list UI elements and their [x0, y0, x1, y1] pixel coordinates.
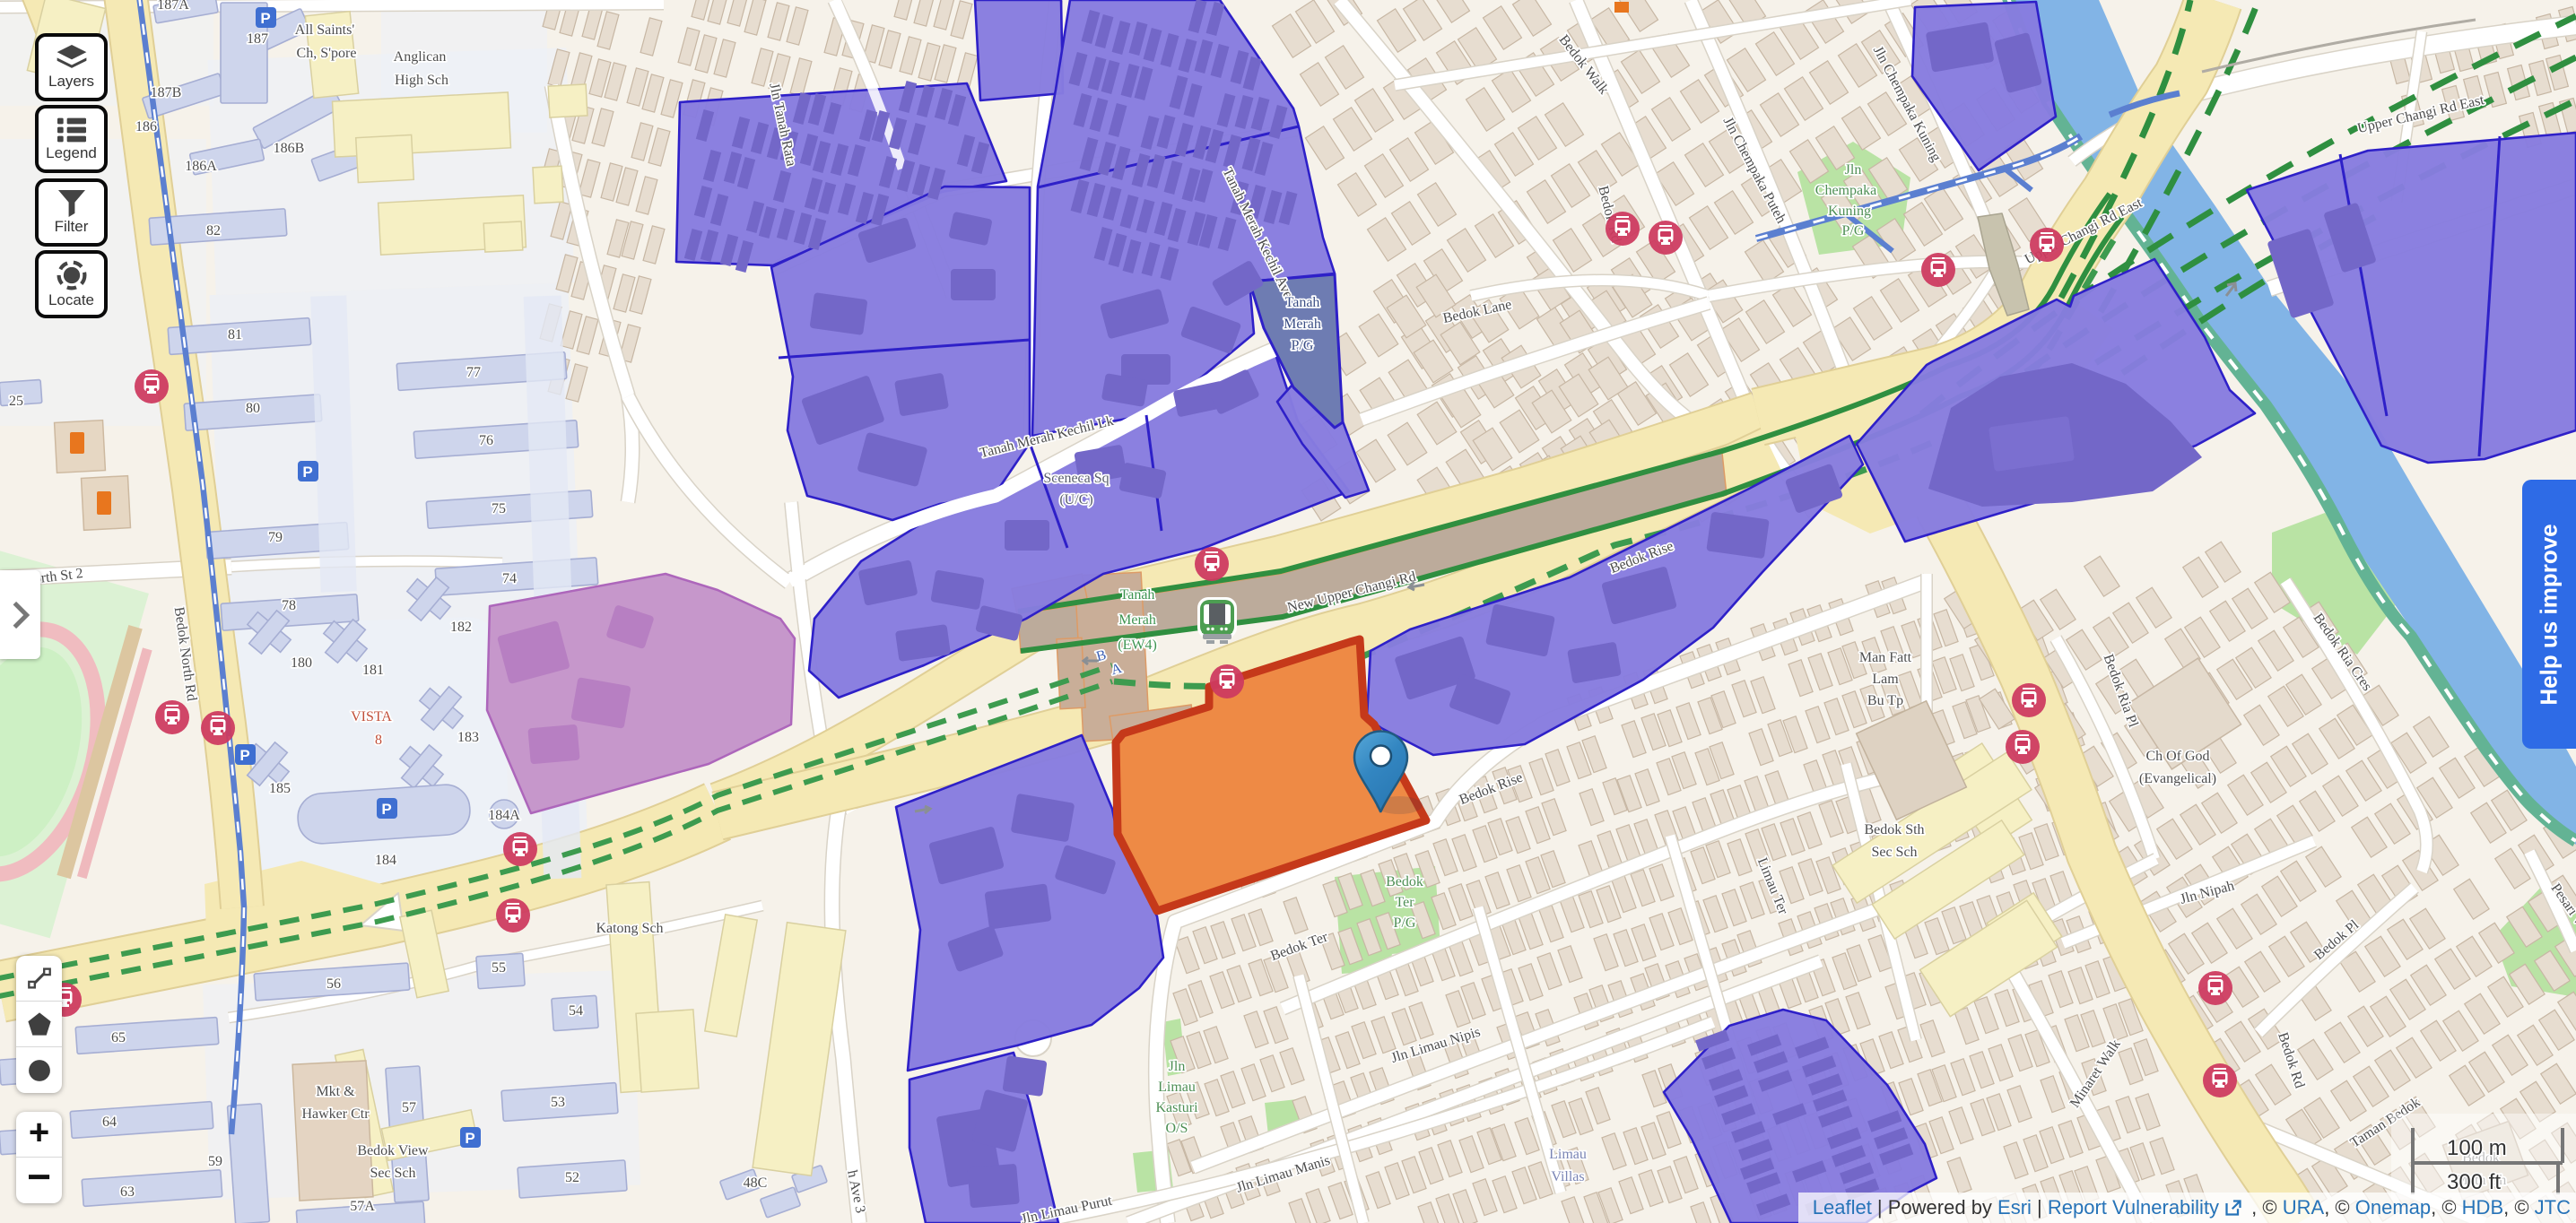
svg-text:Merah: Merah [1284, 317, 1321, 332]
svg-text:64: 64 [102, 1115, 117, 1130]
svg-text:186: 186 [135, 119, 157, 134]
svg-text:High Sch: High Sch [395, 73, 448, 88]
svg-text:Chempaka: Chempaka [1815, 183, 1876, 198]
svg-text:O/S: O/S [1166, 1121, 1188, 1136]
svg-text:65: 65 [111, 1030, 126, 1045]
svg-text:Sec Sch: Sec Sch [1871, 845, 1917, 860]
svg-text:186B: 186B [274, 141, 305, 156]
svg-text:187A: 187A [157, 0, 189, 13]
svg-text:79: 79 [268, 530, 283, 545]
svg-text:Man Fatt: Man Fatt [1859, 650, 1912, 665]
svg-text:Jln: Jln [1169, 1059, 1186, 1074]
svg-text:52: 52 [565, 1170, 579, 1185]
svg-text:P: P [260, 10, 270, 27]
svg-text:P: P [465, 1130, 474, 1147]
svg-text:54: 54 [569, 1003, 583, 1019]
svg-text:181: 181 [362, 663, 384, 678]
svg-text:Bedok Sth: Bedok Sth [1864, 822, 1924, 837]
svg-text:53: 53 [551, 1095, 565, 1110]
svg-text:56: 56 [326, 976, 341, 992]
svg-text:55: 55 [492, 960, 506, 976]
svg-text:Kuning: Kuning [1828, 204, 1871, 219]
svg-text:Hawker Ctr: Hawker Ctr [301, 1106, 370, 1122]
svg-text:(Evangelical): (Evangelical) [2139, 771, 2216, 786]
svg-text:Katong Sch: Katong Sch [596, 921, 663, 936]
svg-text:187B: 187B [151, 85, 182, 100]
svg-text:57: 57 [402, 1100, 416, 1115]
svg-text:Bedok View: Bedok View [357, 1143, 429, 1158]
svg-text:Ch, S'pore: Ch, S'pore [297, 46, 357, 61]
svg-text:76: 76 [479, 433, 493, 448]
svg-text:Tanah: Tanah [1285, 295, 1320, 310]
svg-text:184: 184 [375, 853, 396, 868]
svg-text:300 ft: 300 ft [2447, 1170, 2501, 1194]
svg-text:78: 78 [282, 598, 296, 613]
svg-text:Tanah: Tanah [1120, 587, 1155, 603]
svg-text:Jln: Jln [1845, 162, 1862, 178]
svg-text:74: 74 [502, 571, 517, 586]
svg-text:8: 8 [375, 733, 382, 748]
svg-text:185: 185 [269, 781, 291, 796]
svg-text:48C: 48C [744, 1175, 768, 1191]
svg-text:Kasturi: Kasturi [1155, 1100, 1198, 1115]
svg-text:P: P [381, 801, 391, 818]
svg-text:Merah: Merah [1118, 612, 1156, 628]
svg-text:180: 180 [291, 655, 312, 671]
svg-text:Mkt &: Mkt & [316, 1084, 355, 1099]
svg-text:63: 63 [120, 1184, 135, 1200]
svg-text:183: 183 [457, 730, 479, 745]
svg-text:82: 82 [206, 223, 221, 239]
svg-text:Limau: Limau [1158, 1080, 1196, 1095]
svg-text:182: 182 [450, 620, 472, 635]
svg-text:P: P [302, 464, 312, 481]
svg-text:VISTA: VISTA [351, 709, 392, 724]
svg-text:(EW4): (EW4) [1118, 638, 1157, 653]
svg-text:80: 80 [246, 401, 260, 416]
svg-text:P: P [239, 747, 249, 764]
svg-text:Ch Of God: Ch Of God [2145, 749, 2209, 764]
svg-text:P/G: P/G [1394, 915, 1416, 931]
svg-text:P/G: P/G [1292, 338, 1314, 353]
svg-text:Sceneca Sq: Sceneca Sq [1043, 471, 1109, 486]
svg-text:100 m: 100 m [2447, 1136, 2507, 1160]
svg-text:P/G: P/G [1842, 223, 1865, 239]
svg-text:All Saints': All Saints' [295, 22, 355, 38]
svg-text:25: 25 [9, 394, 23, 409]
svg-text:Anglican: Anglican [394, 49, 447, 65]
svg-text:Bedok: Bedok [1386, 874, 1423, 889]
svg-text:Sec Sch: Sec Sch [370, 1166, 415, 1181]
svg-text:57A: 57A [350, 1199, 375, 1214]
svg-text:81: 81 [228, 327, 242, 343]
svg-text:75: 75 [492, 501, 506, 516]
svg-text:Villas: Villas [1551, 1169, 1584, 1184]
svg-text:59: 59 [208, 1154, 222, 1169]
svg-text:Bu Tp: Bu Tp [1867, 693, 1903, 708]
svg-text:184A: 184A [488, 808, 520, 823]
svg-text:77: 77 [466, 365, 481, 380]
svg-text:Ter: Ter [1395, 895, 1414, 910]
svg-text:186A: 186A [185, 159, 217, 174]
svg-text:187: 187 [247, 31, 268, 47]
svg-text:Lam: Lam [1872, 672, 1899, 687]
svg-text:Limau: Limau [1549, 1147, 1587, 1162]
svg-text:(U/C): (U/C) [1059, 492, 1092, 507]
